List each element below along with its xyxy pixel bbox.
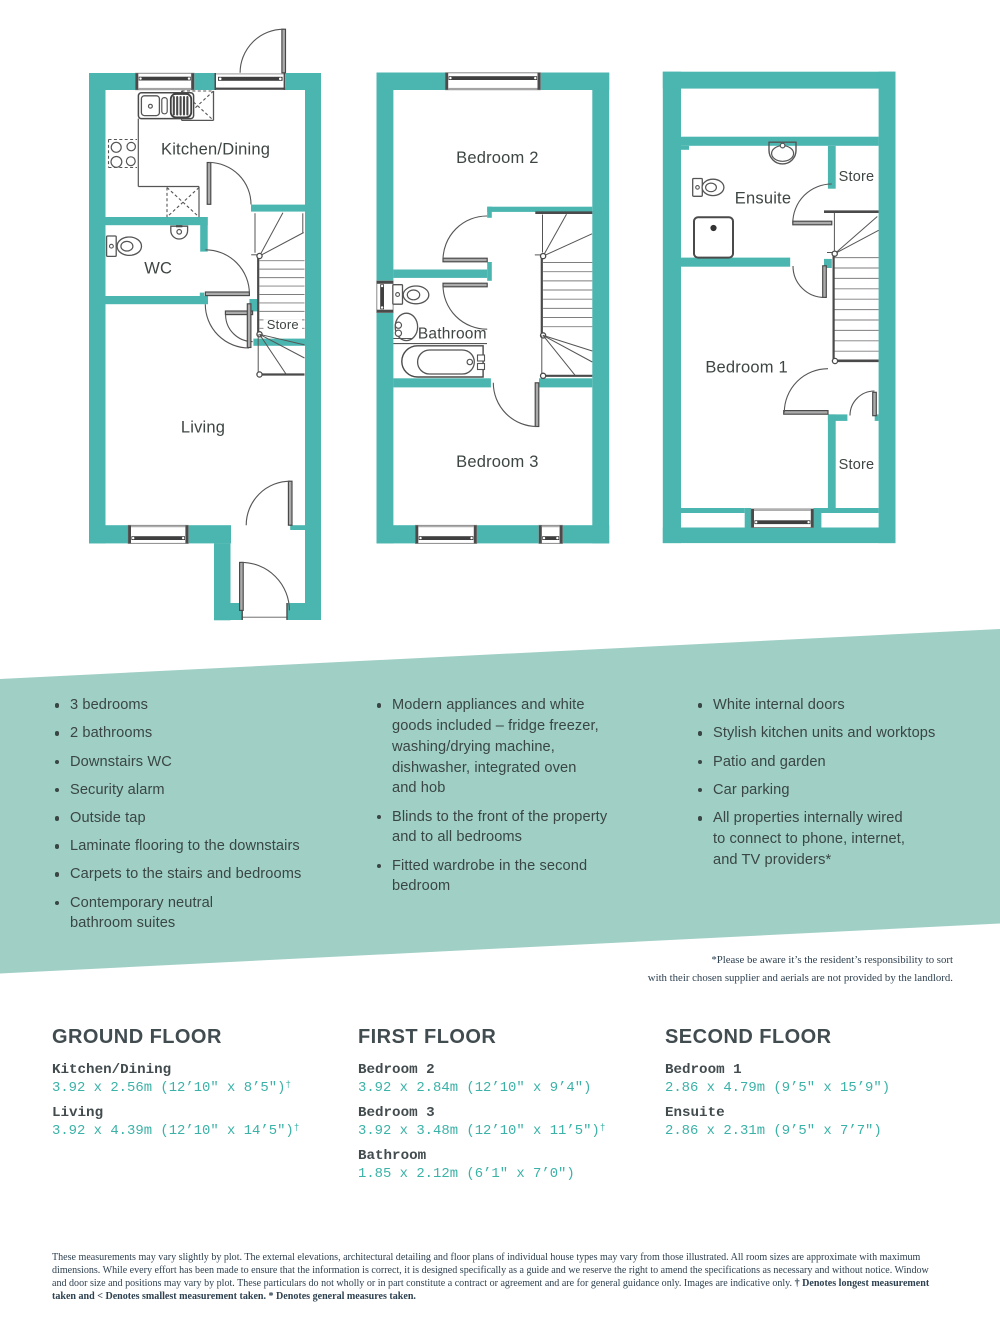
svg-text:Ensuite: Ensuite: [735, 189, 791, 207]
svg-text:Store: Store: [839, 169, 875, 185]
svg-text:Kitchen/Dining: Kitchen/Dining: [161, 141, 270, 159]
svg-text:Living: Living: [181, 419, 225, 437]
svg-text:Bedroom 2: Bedroom 2: [456, 149, 539, 167]
svg-text:Store: Store: [267, 317, 299, 332]
svg-text:Bathroom: Bathroom: [418, 325, 487, 342]
svg-text:Store: Store: [839, 457, 875, 473]
svg-text:WC: WC: [144, 259, 172, 277]
svg-text:Bedroom 3: Bedroom 3: [456, 453, 539, 471]
svg-text:Bedroom 1: Bedroom 1: [705, 358, 788, 376]
